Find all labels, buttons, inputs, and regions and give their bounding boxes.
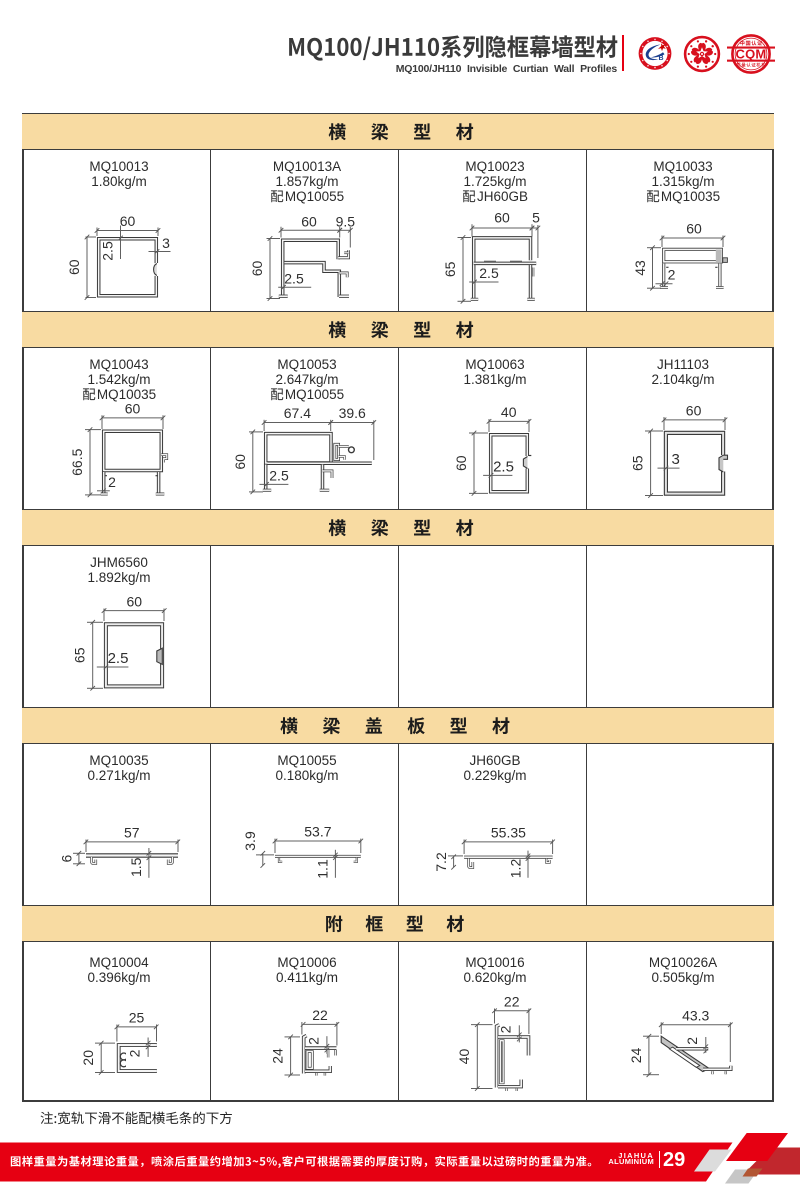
svg-text:57: 57 — [124, 825, 140, 841]
svg-text:1.5: 1.5 — [128, 857, 144, 877]
svg-text:6: 6 — [59, 854, 75, 862]
svg-text:60: 60 — [120, 213, 136, 229]
svg-text:3: 3 — [672, 451, 680, 468]
svg-text:60: 60 — [232, 454, 248, 470]
svg-text:25: 25 — [129, 1010, 145, 1026]
svg-text:39.6: 39.6 — [339, 405, 366, 421]
svg-text:2: 2 — [668, 267, 676, 283]
svg-text:7.2: 7.2 — [433, 852, 449, 872]
svg-text:60: 60 — [66, 259, 82, 275]
svg-text:2.5: 2.5 — [479, 265, 499, 281]
svg-text:65: 65 — [630, 455, 646, 471]
svg-text:2.5: 2.5 — [100, 241, 116, 261]
svg-text:60: 60 — [127, 593, 143, 609]
svg-text:1.1: 1.1 — [315, 859, 331, 879]
svg-text:65: 65 — [442, 261, 458, 277]
svg-text:66.5: 66.5 — [69, 448, 85, 475]
svg-text:60: 60 — [453, 455, 469, 471]
svg-text:60: 60 — [125, 401, 141, 417]
svg-text:43: 43 — [632, 260, 648, 276]
svg-text:24: 24 — [628, 1047, 644, 1063]
svg-text:60: 60 — [301, 214, 317, 230]
svg-text:9.5: 9.5 — [336, 214, 356, 230]
svg-text:40: 40 — [501, 404, 517, 420]
svg-text:2: 2 — [108, 474, 116, 490]
svg-text:3: 3 — [162, 235, 170, 251]
svg-text:2: 2 — [127, 1049, 143, 1057]
svg-text:2: 2 — [498, 1025, 514, 1033]
svg-text:2.5: 2.5 — [108, 650, 129, 667]
svg-text:22: 22 — [504, 994, 520, 1010]
svg-text:60: 60 — [249, 261, 265, 277]
svg-text:53.7: 53.7 — [304, 824, 331, 840]
svg-text:2: 2 — [684, 1037, 700, 1045]
svg-text:55.35: 55.35 — [491, 825, 526, 841]
svg-text:2.5: 2.5 — [269, 468, 289, 484]
svg-text:65: 65 — [72, 647, 88, 663]
svg-text:2: 2 — [306, 1037, 322, 1045]
svg-text:60: 60 — [686, 221, 702, 237]
svg-text:1.2: 1.2 — [508, 859, 524, 879]
svg-text:2.5: 2.5 — [284, 271, 304, 287]
svg-text:5: 5 — [532, 210, 540, 226]
svg-text:2.5: 2.5 — [493, 458, 514, 475]
svg-text:43.3: 43.3 — [682, 1008, 709, 1024]
svg-text:20: 20 — [80, 1050, 96, 1066]
svg-text:67.4: 67.4 — [284, 405, 311, 421]
svg-text:24: 24 — [270, 1048, 286, 1064]
svg-text:60: 60 — [494, 210, 510, 226]
svg-text:22: 22 — [312, 1007, 328, 1023]
svg-text:60: 60 — [686, 403, 702, 419]
svg-text:3.9: 3.9 — [242, 831, 258, 851]
svg-text:40: 40 — [456, 1049, 472, 1065]
